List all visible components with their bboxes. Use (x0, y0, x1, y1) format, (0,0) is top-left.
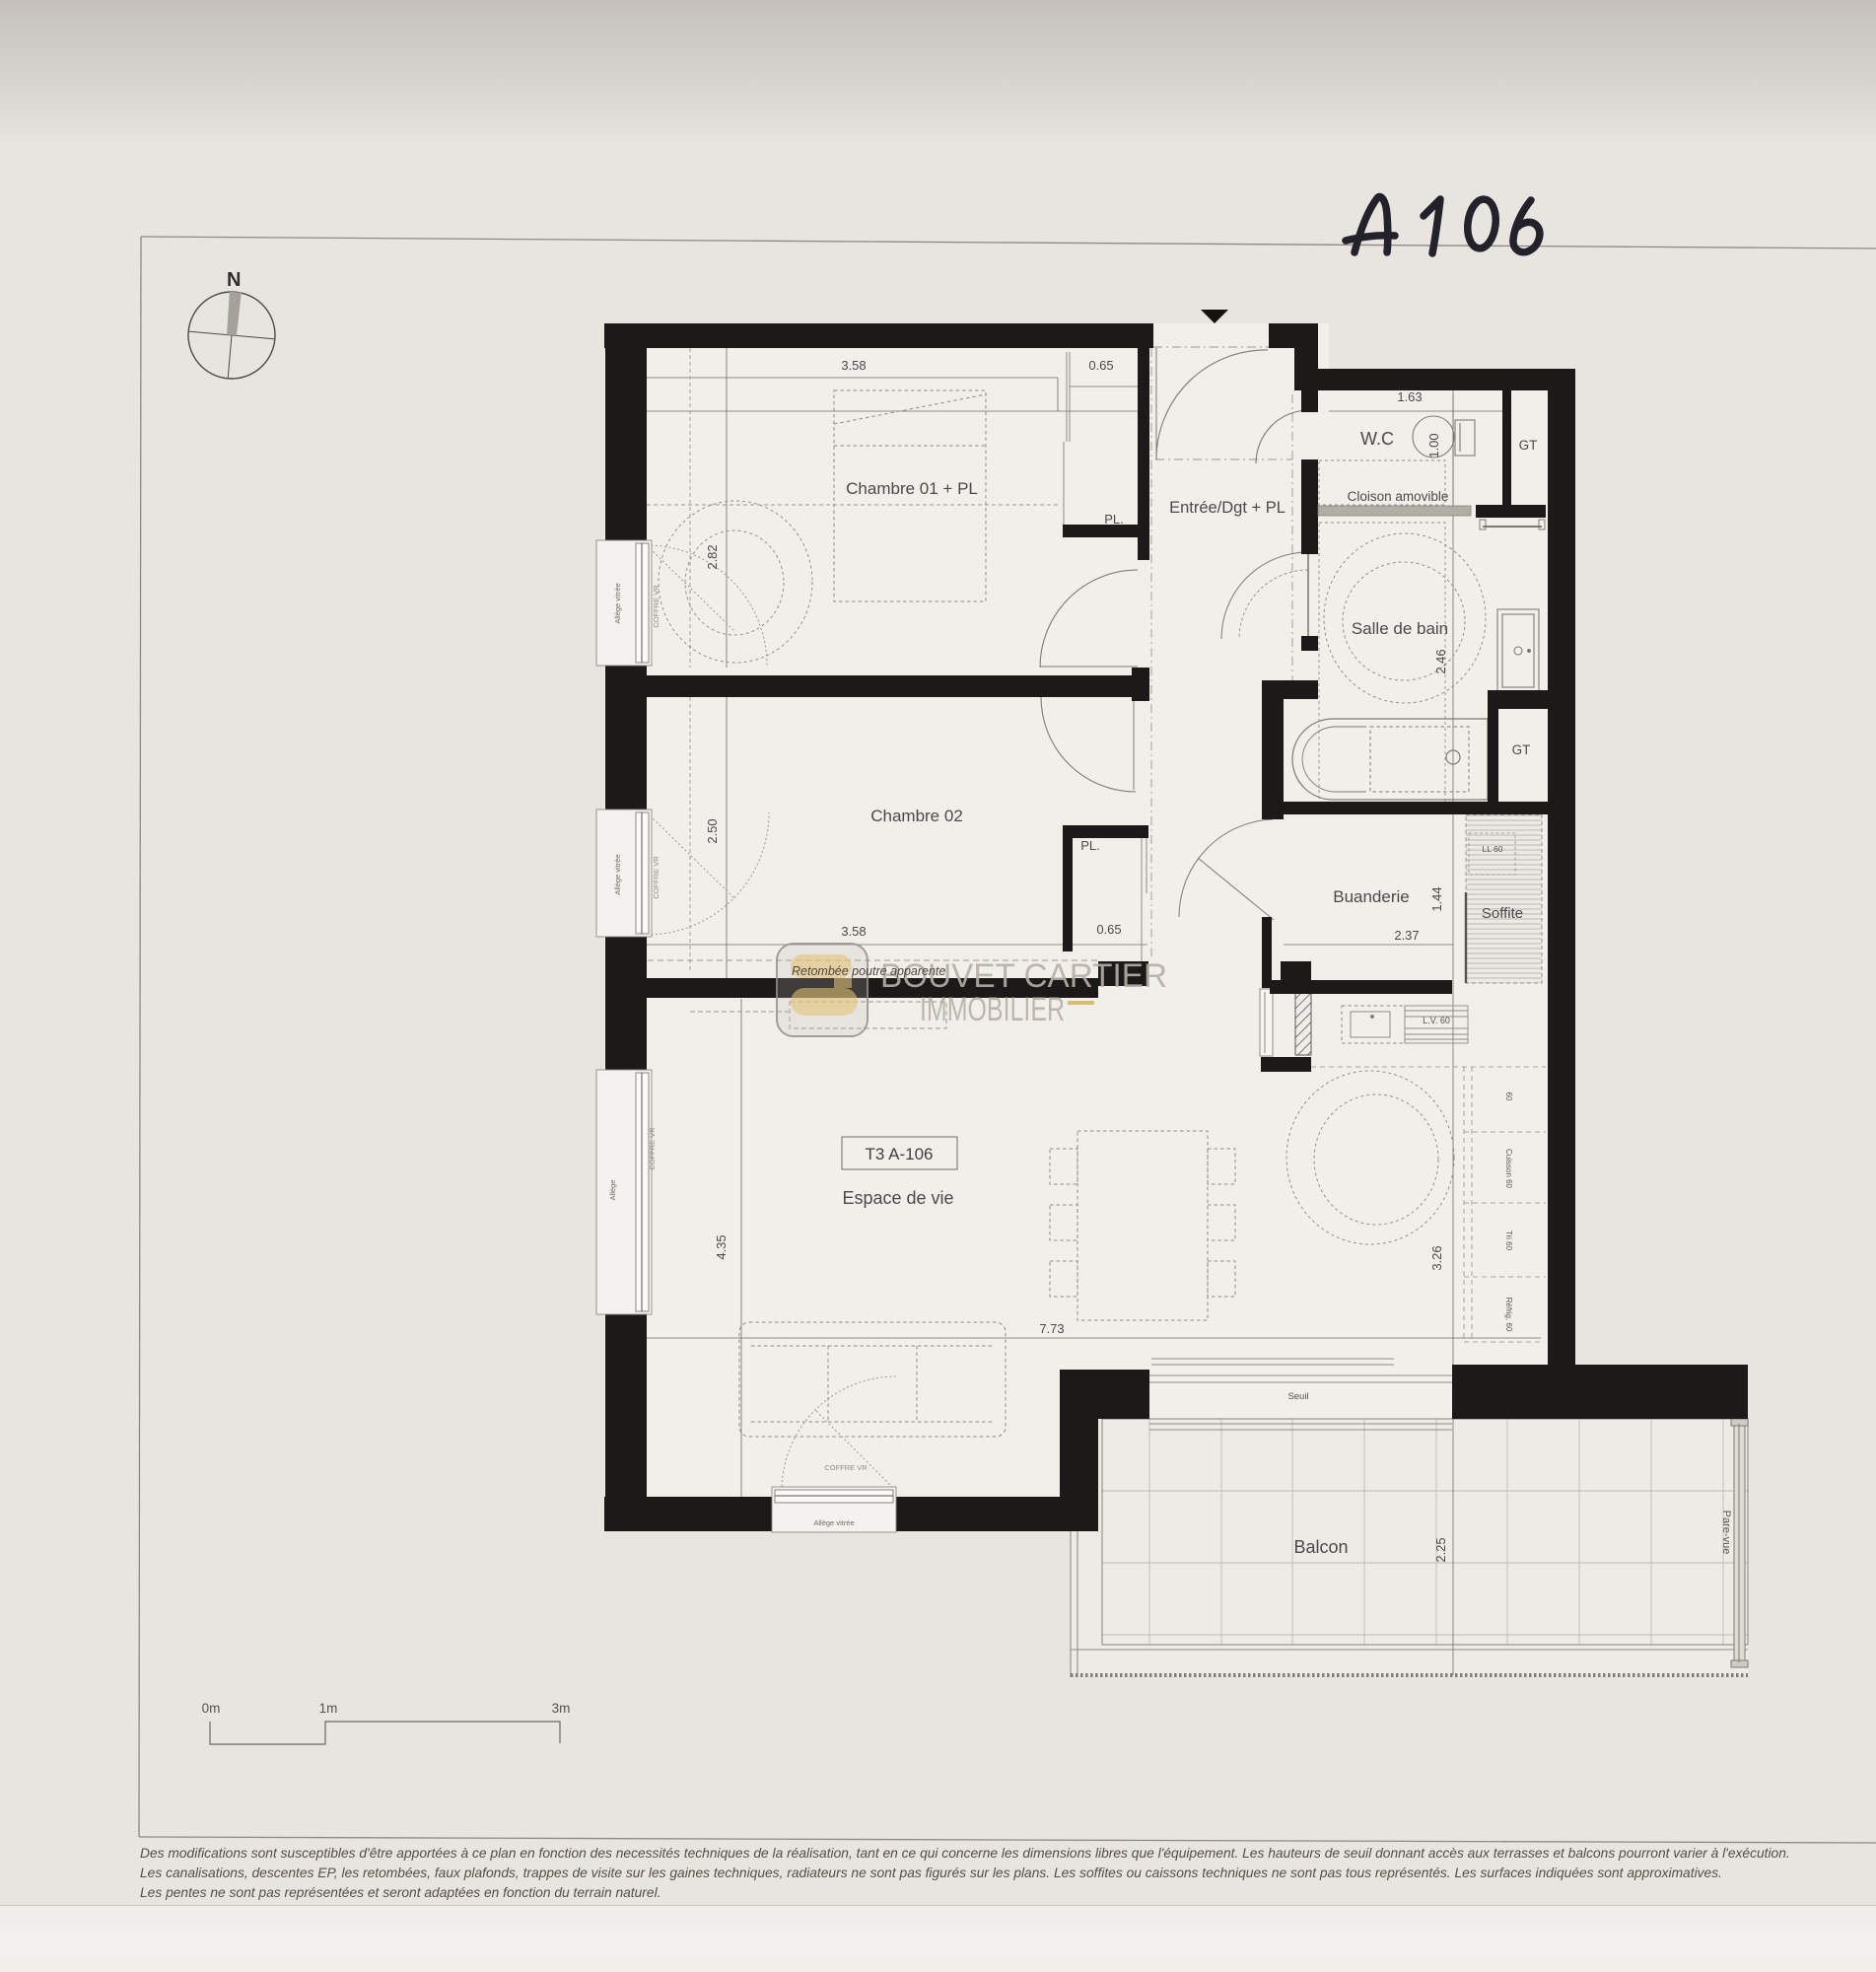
svg-text:4.35: 4.35 (714, 1234, 729, 1259)
svg-text:T3 A-106: T3 A-106 (866, 1145, 934, 1163)
svg-text:Des modifications sont suscept: Des modifications sont susceptibles d'êt… (140, 1846, 1790, 1861)
svg-text:60: 60 (1504, 1092, 1513, 1101)
svg-text:0.65: 0.65 (1088, 358, 1113, 373)
svg-text:Seuil: Seuil (1287, 1391, 1308, 1402)
svg-text:2.46: 2.46 (1433, 649, 1448, 673)
svg-text:1.63: 1.63 (1397, 389, 1422, 404)
svg-text:PL.: PL. (1080, 838, 1100, 853)
svg-text:COFFRE VR: COFFRE VR (648, 1127, 657, 1170)
svg-text:Pare-vue: Pare-vue (1720, 1511, 1732, 1555)
svg-text:2.50: 2.50 (705, 818, 720, 843)
svg-text:Réfrig. 60: Réfrig. 60 (1504, 1298, 1513, 1332)
svg-text:Soffite: Soffite (1482, 905, 1523, 922)
svg-text:Entrée/Dgt + PL: Entrée/Dgt + PL (1169, 499, 1285, 517)
svg-text:Cuisson 60: Cuisson 60 (1504, 1149, 1513, 1189)
svg-text:Allège: Allège (608, 1180, 617, 1201)
svg-text:IMMOBILIER: IMMOBILIER (920, 991, 1065, 1028)
svg-text:Espace de vie: Espace de vie (842, 1188, 953, 1208)
svg-text:COFFRE VR: COFFRE VR (824, 1463, 868, 1472)
svg-text:3m: 3m (552, 1701, 571, 1716)
svg-text:3.58: 3.58 (841, 924, 866, 939)
svg-text:Chambre 01 + PL: Chambre 01 + PL (846, 479, 978, 498)
svg-text:GT: GT (1512, 742, 1531, 757)
svg-text:0m: 0m (202, 1701, 221, 1716)
svg-text:PL.: PL. (1104, 512, 1124, 527)
svg-text:Cloison amovible: Cloison amovible (1348, 489, 1449, 504)
svg-text:2.25: 2.25 (1433, 1537, 1448, 1562)
svg-text:GT: GT (1519, 438, 1538, 453)
svg-text:L.V. 60: L.V. 60 (1423, 1016, 1450, 1025)
svg-text:Les canalisations, descentes E: Les canalisations, descentes EP, les ret… (140, 1866, 1722, 1880)
svg-text:W.C: W.C (1360, 429, 1394, 449)
svg-text:Allège vitrée: Allège vitrée (613, 854, 622, 894)
svg-text:7.73: 7.73 (1039, 1321, 1064, 1336)
svg-text:COFFRE VR: COFFRE VR (652, 585, 660, 628)
svg-text:Retombée poutre apparente: Retombée poutre apparente (792, 964, 945, 978)
svg-text:Buanderie: Buanderie (1333, 887, 1410, 906)
svg-text:2.37: 2.37 (1394, 928, 1419, 943)
svg-text:0.65: 0.65 (1096, 922, 1121, 937)
svg-text:1.44: 1.44 (1429, 886, 1444, 911)
svg-text:2.82: 2.82 (705, 544, 720, 569)
svg-text:Tri 60: Tri 60 (1504, 1231, 1513, 1251)
svg-text:1m: 1m (319, 1701, 338, 1716)
svg-text:1.00: 1.00 (1426, 433, 1441, 458)
svg-text:COFFRE VR: COFFRE VR (652, 856, 660, 899)
svg-text:3.58: 3.58 (841, 358, 866, 373)
svg-text:LL 60: LL 60 (1483, 844, 1503, 854)
svg-text:Allège vitrée: Allège vitrée (613, 583, 622, 623)
svg-text:Balcon: Balcon (1293, 1537, 1348, 1557)
svg-text:Allège vitrée: Allège vitrée (813, 1518, 854, 1527)
svg-text:Chambre 02: Chambre 02 (870, 807, 963, 825)
svg-text:3.26: 3.26 (1429, 1245, 1444, 1270)
svg-text:N: N (227, 269, 241, 291)
svg-text:Les pentes ne sont pas représe: Les pentes ne sont pas représentées et s… (140, 1885, 660, 1900)
svg-text:Salle de bain: Salle de bain (1352, 619, 1448, 638)
